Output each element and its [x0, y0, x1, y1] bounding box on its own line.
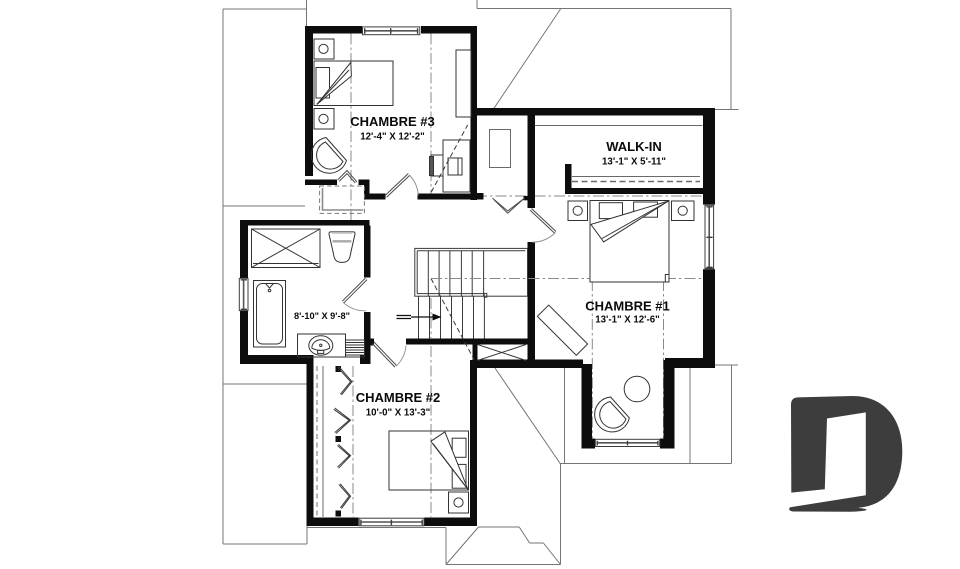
svg-text:13'-1" X 5'-11": 13'-1" X 5'-11": [602, 157, 666, 168]
svg-text:CHAMBRE #1: CHAMBRE #1: [585, 299, 670, 314]
svg-text:8'-10" X 9'-8": 8'-10" X 9'-8": [294, 311, 350, 321]
svg-text:WALK-IN: WALK-IN: [606, 139, 662, 154]
svg-text:10'-0" X 13'-3": 10'-0" X 13'-3": [366, 408, 430, 419]
svg-text:CHAMBRE #2: CHAMBRE #2: [356, 390, 441, 405]
svg-text:13'-1" X 12'-6": 13'-1" X 12'-6": [595, 315, 659, 326]
svg-text:12'-4" X 12'-2": 12'-4" X 12'-2": [360, 132, 424, 143]
svg-text:CHAMBRE #3: CHAMBRE #3: [350, 114, 435, 129]
